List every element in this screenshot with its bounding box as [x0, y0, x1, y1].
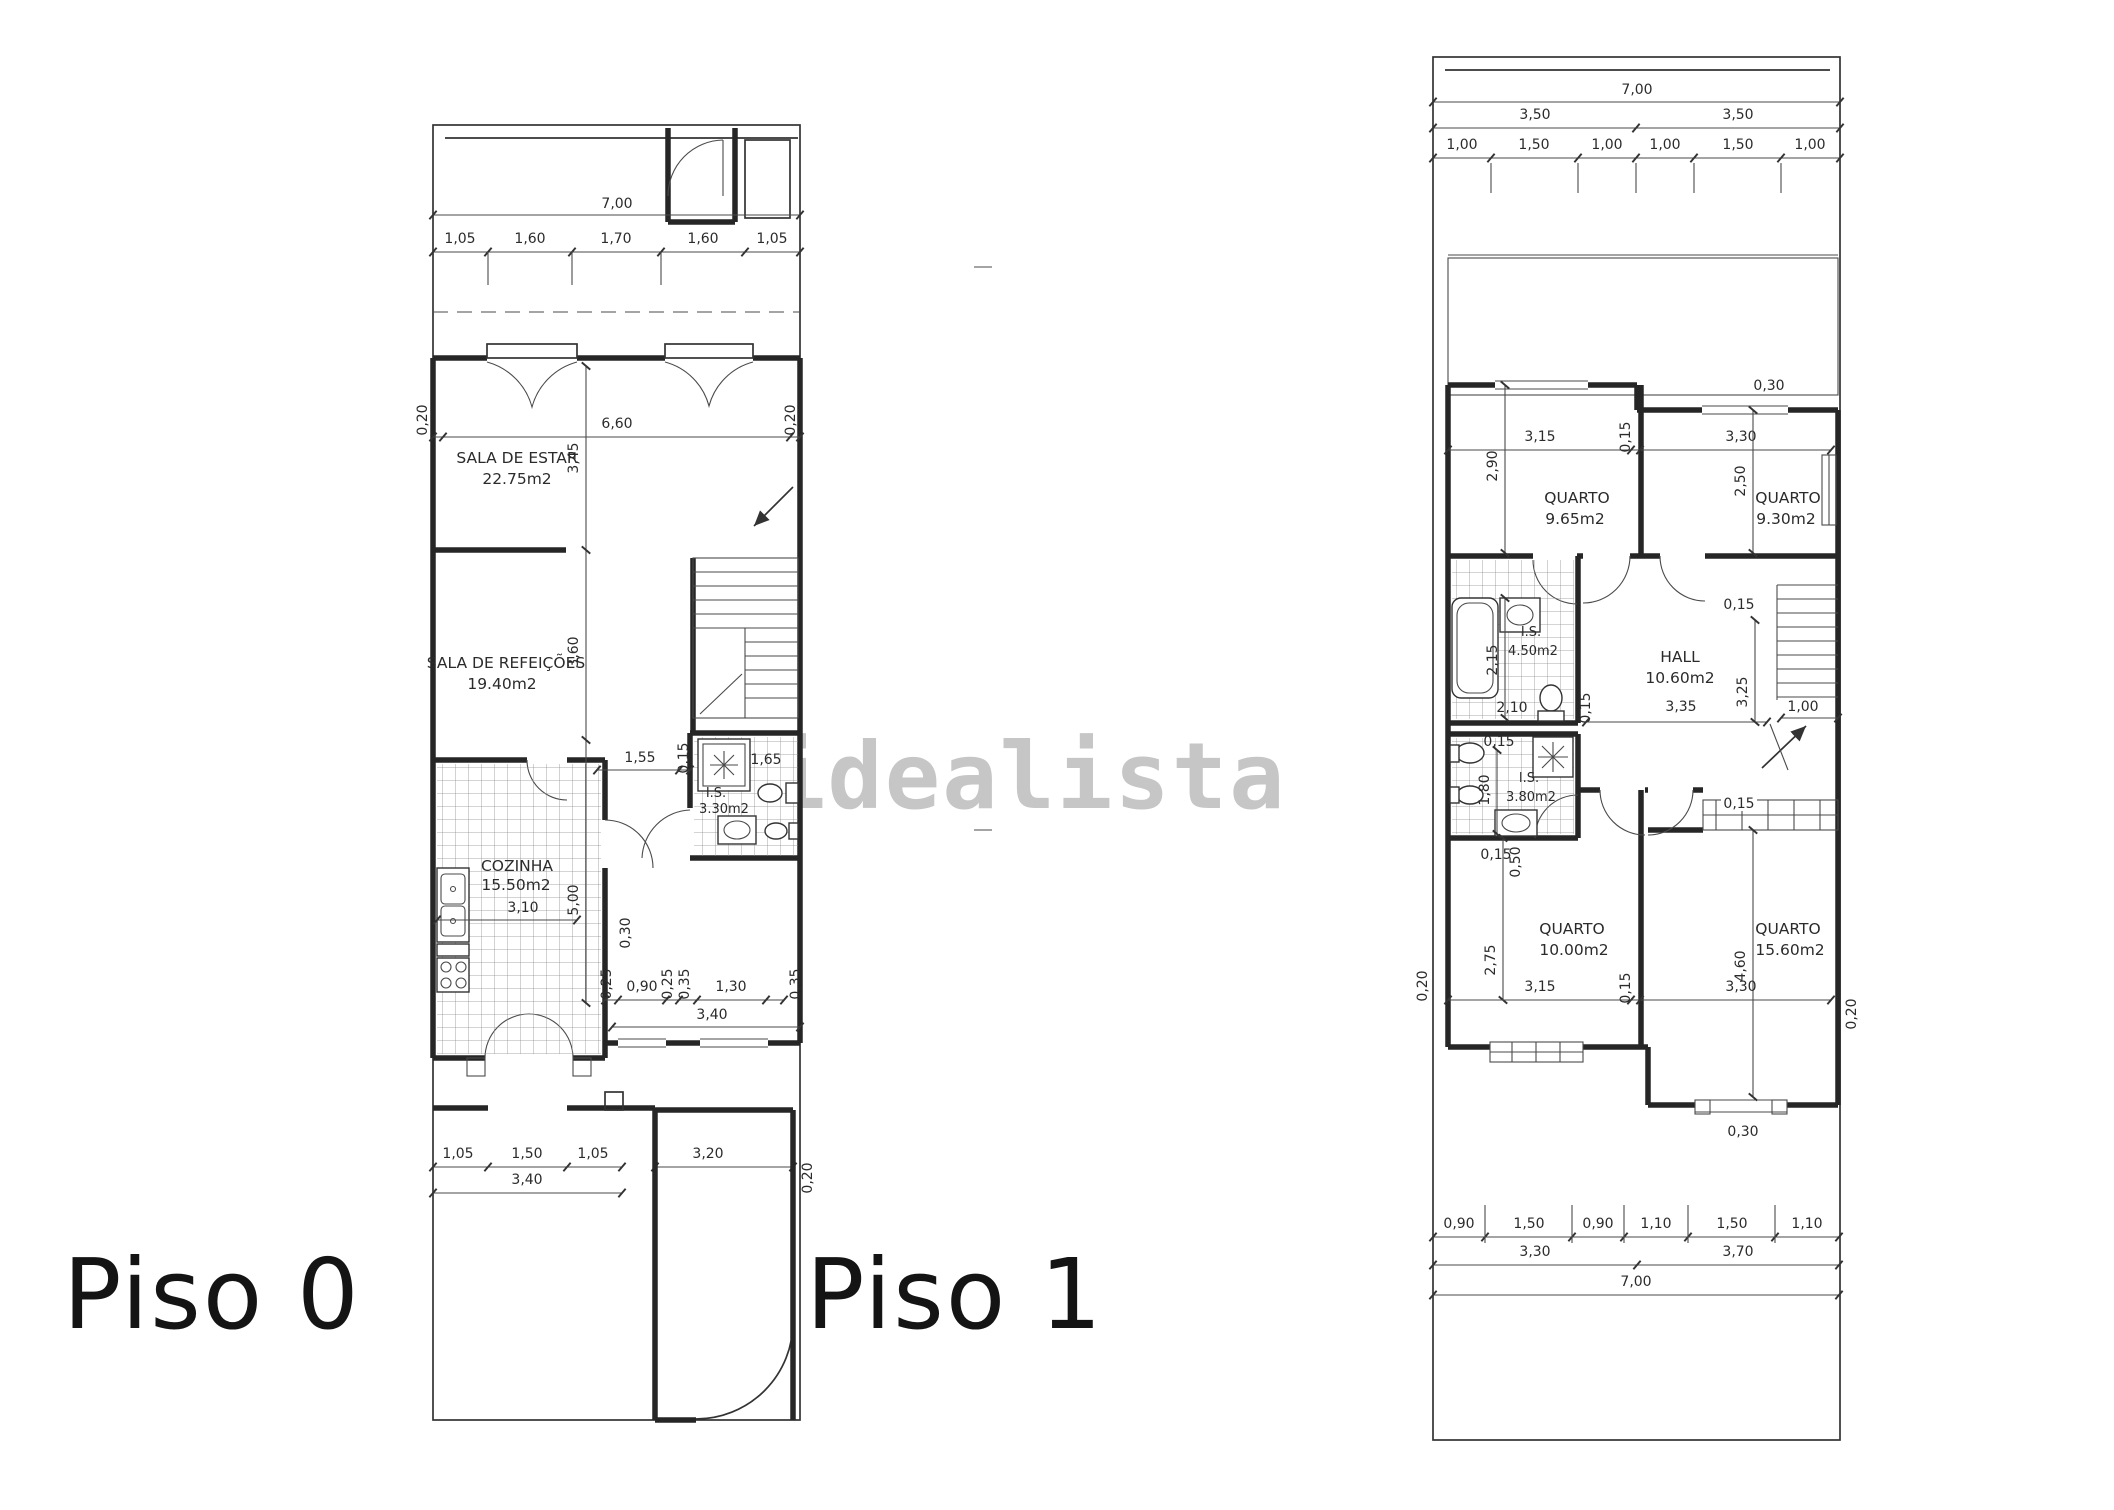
- dim-label: 1,80: [1477, 774, 1493, 805]
- dim-label: 1,60: [514, 231, 545, 247]
- room-label: QUARTO: [1544, 489, 1609, 507]
- dim-label: 1,50: [1722, 137, 1753, 153]
- dim-label: 0,15: [1723, 796, 1754, 812]
- dim-label: 0,30: [618, 917, 634, 948]
- dim-label: 1,65: [750, 752, 781, 768]
- dim-label: 1,05: [577, 1146, 608, 1162]
- dim-label: 1,50: [1716, 1216, 1747, 1232]
- room-area: 10.00m2: [1539, 941, 1608, 959]
- dim-label: 3,30: [1725, 429, 1756, 445]
- dim-label: 2,15: [1485, 644, 1501, 675]
- dim-label: 0,15: [1578, 692, 1594, 723]
- dim-label: 0,15: [1480, 847, 1511, 863]
- toilet: [1456, 743, 1484, 763]
- dim-label: 0,90: [1582, 1216, 1613, 1232]
- room-area: 15.60m2: [1755, 941, 1824, 959]
- dim-label: 3,70: [1722, 1244, 1753, 1260]
- dim-label: 0,20: [800, 1162, 816, 1193]
- dim-label: 3,50: [1519, 107, 1550, 123]
- scan-marks: [974, 267, 992, 830]
- floor0-title: Piso 0: [63, 1238, 361, 1351]
- dim-label: 3,35: [1665, 699, 1696, 715]
- dim-label: 2,75: [1483, 944, 1499, 975]
- toilet: [1540, 685, 1562, 711]
- floor1-bathroom2: I.S. 3.80m2: [1450, 737, 1574, 836]
- room-label: SALA DE ESTAR: [456, 449, 577, 467]
- floor1-plan: 7,00 3,50 3,50 1,00 1,50 1,00 1,00 1,50 …: [1415, 57, 1860, 1440]
- floor1-title: Piso 1: [806, 1238, 1104, 1351]
- room-area: 9.30m2: [1756, 510, 1815, 528]
- dim-label: 0,20: [1844, 998, 1860, 1029]
- dim-label: 1,10: [1791, 1216, 1822, 1232]
- kitchen-sink-unit: [437, 868, 469, 942]
- dim-label: 0,20: [783, 404, 799, 435]
- dim-label: 1,55: [624, 750, 655, 766]
- dim-label: 4,60: [1733, 950, 1749, 981]
- dim-label: 0,20: [415, 404, 431, 435]
- room-area: 22.75m2: [482, 470, 551, 488]
- dim-label: 1,05: [756, 231, 787, 247]
- dim-label: 0,15: [1483, 734, 1514, 750]
- dim-label: 1,05: [442, 1146, 473, 1162]
- dim-label: 0,25: [660, 968, 676, 999]
- dim-label: 1,50: [1513, 1216, 1544, 1232]
- dim-label: 0,30: [1727, 1124, 1758, 1140]
- dim-label: 0,30: [1753, 378, 1784, 394]
- dim-label: 0,35: [788, 968, 804, 999]
- room-label: I.S.: [1519, 771, 1539, 786]
- dim-label: 3,25: [1735, 676, 1751, 707]
- dim-label: 5,00: [566, 884, 582, 915]
- room-area: 3.30m2: [699, 802, 749, 817]
- room-label: SALA DE REFEIÇÕES: [427, 653, 585, 672]
- dim-label: 0,90: [626, 979, 657, 995]
- dim-label: 3,10: [507, 900, 538, 916]
- dim-label: 3,30: [1519, 1244, 1550, 1260]
- dim-label: 0,90: [1443, 1216, 1474, 1232]
- dim-label: 3,40: [511, 1172, 542, 1188]
- room-label: COZINHA: [481, 857, 553, 875]
- room-label: QUARTO: [1539, 920, 1604, 938]
- room-area: 3.80m2: [1506, 790, 1556, 805]
- room-label: HALL: [1660, 648, 1700, 666]
- dim-label: 1,00: [1591, 137, 1622, 153]
- room-area: 15.50m2: [481, 876, 550, 894]
- dim-label: 0,15: [1723, 597, 1754, 613]
- dim-label: 0,15: [1618, 421, 1634, 452]
- dim-label: 2,10: [1496, 700, 1527, 716]
- room-area: 10.60m2: [1645, 669, 1714, 687]
- dim-label: 1,10: [1640, 1216, 1671, 1232]
- room-label: I.S.: [1521, 625, 1541, 640]
- dim-label: 7,00: [1621, 82, 1652, 98]
- dim-label: 1,70: [600, 231, 631, 247]
- floor1-bathroom1: I.S. 4.50m2: [1452, 560, 1574, 721]
- dim-label: 2,50: [1733, 465, 1749, 496]
- dim-label: 0,25: [599, 968, 615, 999]
- dim-label: 1,00: [1446, 137, 1477, 153]
- dim-label: 3,40: [696, 1007, 727, 1023]
- dim-label: 1,00: [1787, 699, 1818, 715]
- dim-label: 3,30: [1725, 979, 1756, 995]
- room-label: I.S.: [706, 786, 726, 801]
- floorplan-page: idealista: [0, 0, 2114, 1510]
- dim-label: 0,50: [1508, 846, 1524, 877]
- dim-label: 2,90: [1485, 450, 1501, 481]
- bidet: [765, 823, 787, 839]
- dim-label: 3,50: [1722, 107, 1753, 123]
- dim-label: 1,00: [1794, 137, 1825, 153]
- dim-label: 0,15: [676, 742, 692, 773]
- dim-label: 1,50: [1518, 137, 1549, 153]
- toilet: [758, 784, 782, 802]
- dim-label: 7,00: [1620, 1274, 1651, 1290]
- dim-label: 1,00: [1649, 137, 1680, 153]
- dim-label: 1,30: [715, 979, 746, 995]
- dim-label: 6,60: [601, 416, 632, 432]
- dim-label: 1,60: [687, 231, 718, 247]
- dim-label: 3,15: [1524, 429, 1555, 445]
- room-area: 19.40m2: [467, 675, 536, 693]
- room-area: 4.50m2: [1508, 644, 1558, 659]
- dim-label: 0,35: [677, 968, 693, 999]
- dim-label: 7,00: [601, 196, 632, 212]
- floor0-plan: 7,00 1,05 1,60 1,70 1,60 1,05: [415, 125, 816, 1420]
- dim-label: 1,50: [511, 1146, 542, 1162]
- dim-label: 0,20: [1415, 970, 1431, 1001]
- dim-label: 1,05: [444, 231, 475, 247]
- dim-label: 3,15: [1524, 979, 1555, 995]
- room-label: QUARTO: [1755, 920, 1820, 938]
- room-area: 9.65m2: [1545, 510, 1604, 528]
- dim-label: 0,15: [1618, 972, 1634, 1003]
- dim-label: 3,20: [692, 1146, 723, 1162]
- room-label: QUARTO: [1755, 489, 1820, 507]
